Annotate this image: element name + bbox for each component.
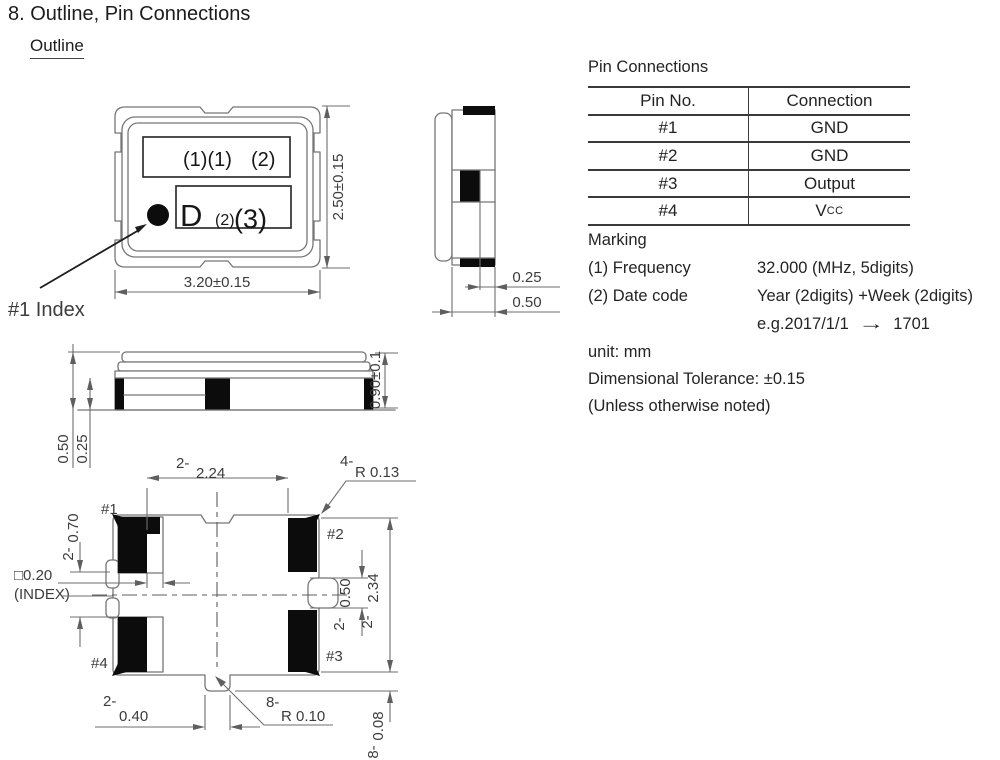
bottom-view-drawing: #1 #2 #3 #4 2- 2.24 4- R 0.13 0.70 2- □0… (0, 430, 420, 760)
left-castellation-2 (106, 598, 119, 618)
lid-outline-inner (128, 123, 307, 251)
top-view-drawing: (1)(1) (2) D (2) (3) #1 Index 3.20±0.15 … (0, 78, 400, 340)
table-row-pin4: #4 VCC (588, 198, 910, 224)
example-arrow-icon: → (858, 315, 884, 334)
side-dim-b-label: 0.50 (512, 294, 541, 311)
side-view-drawing: 0.25 0.50 (420, 80, 600, 325)
side-pad-bottom (460, 258, 495, 267)
table-row-pin1: #1 GND (588, 116, 910, 144)
index-area-label: (INDEX) (14, 586, 70, 603)
marking-frequency-label: (1)(1) (183, 149, 232, 171)
table-row-pin2: #2 GND (588, 143, 910, 171)
marking-title: Marking (588, 231, 647, 250)
corner-radius-prefix: 4- (340, 453, 353, 470)
dim-notch-prefix: 2- (331, 617, 348, 630)
dim-pitch-y-prefix: 2- (359, 615, 376, 628)
section-heading-outline: Outline (30, 36, 84, 59)
marking-date-label: (2) Date code (588, 287, 688, 306)
pad-2-label: #2 (327, 526, 344, 543)
side-pad-top (463, 106, 495, 115)
dim-notch-label: 0.50 (337, 578, 354, 607)
tab-radius-label: R 0.10 (281, 708, 325, 725)
tolerance-note: Dimensional Tolerance: ±0.15 (588, 370, 805, 389)
marking-frequency-label-2: (2) (251, 149, 275, 171)
pad-4-label: #4 (91, 655, 108, 672)
side-lid-profile (435, 113, 452, 261)
marking-datecode-label-2: (3) (234, 204, 267, 234)
dim-tab-label: 0.40 (119, 708, 148, 725)
index-size-label: □0.20 (14, 567, 52, 584)
marking-example-result: 1701 (893, 315, 930, 333)
dim-pitch-x-label: 2.24 (196, 465, 225, 482)
marking-series-letter: D (180, 198, 202, 233)
dim-height-label: 2.50±0.15 (330, 154, 347, 221)
tolerance-subnote: (Unless otherwise noted) (588, 397, 771, 416)
marking-freq-value: 32.000 (MHz, 5digits) (757, 259, 914, 278)
tab-radius-prefix: 8- (266, 694, 279, 711)
side-dim-a-label: 0.25 (512, 269, 541, 286)
dim-pitch-x-prefix: 2- (176, 455, 189, 472)
side-pad-mid (460, 170, 480, 202)
pin1-connection: GND (749, 118, 910, 138)
unit-note: unit: mm (588, 343, 651, 362)
front-lid-base (118, 362, 370, 371)
front-lid-top (122, 352, 366, 362)
lid-outline-outer (122, 117, 313, 257)
front-dim-height-label: 0.90±0.1 (367, 351, 384, 409)
left-castellation-1 (106, 560, 119, 588)
pin4-number: #4 (588, 198, 749, 224)
corner-radius-leader (324, 481, 416, 511)
pin4-connection: VCC (749, 201, 910, 221)
pin-connections-table: Pin No. Connection #1 GND #2 GND #3 Outp… (588, 86, 910, 226)
pin2-number: #2 (588, 143, 749, 169)
right-castellation (308, 578, 338, 608)
dim-width-label: 3.20±0.15 (184, 274, 251, 291)
package-outline (115, 107, 320, 267)
dim-pad-width-label: 0.70 (65, 513, 82, 542)
pin2-connection: GND (749, 146, 910, 166)
front-body (115, 371, 373, 410)
marking-example: e.g.2017/1/1→1701 (757, 315, 930, 334)
marking-freq-label: (1) Frequency (588, 259, 691, 278)
dim-pitch-y-label: 2.34 (365, 573, 382, 602)
table-header-row: Pin No. Connection (588, 88, 910, 116)
index-callout-label: #1 Index (8, 299, 85, 321)
index-arrow-line (40, 230, 139, 288)
col-header-connection: Connection (749, 91, 910, 111)
page-title: 8. Outline, Pin Connections (8, 3, 250, 26)
marking-example-text: e.g.2017/1/1 (757, 315, 849, 333)
dim-offset-prefix: 8- (365, 745, 382, 758)
corner-radius-label: R 0.13 (355, 464, 399, 481)
front-pad-center (205, 378, 230, 410)
marking-date-value: Year (2digits) +Week (2digits) (757, 287, 973, 306)
table-row-pin3: #3 Output (588, 171, 910, 199)
pad-1-label: #1 (101, 501, 118, 518)
pin3-connection: Output (749, 174, 910, 194)
dim-pad-width-prefix: 2- (60, 547, 77, 560)
pad-3-label: #3 (326, 648, 343, 665)
pin-table-title: Pin Connections (588, 58, 708, 77)
front-pad-left (115, 378, 124, 410)
pin3-number: #3 (588, 171, 749, 197)
dim-offset-label: 0.08 (370, 711, 387, 740)
col-header-pin-no: Pin No. (588, 88, 749, 114)
marking-datecode-label: (2) (215, 212, 235, 229)
dim-tab-prefix: 2- (103, 693, 116, 710)
pin1-number: #1 (588, 116, 749, 142)
datasheet-page: 8. Outline, Pin Connections Outline (1)(… (0, 0, 1000, 760)
index-dot (147, 204, 169, 226)
